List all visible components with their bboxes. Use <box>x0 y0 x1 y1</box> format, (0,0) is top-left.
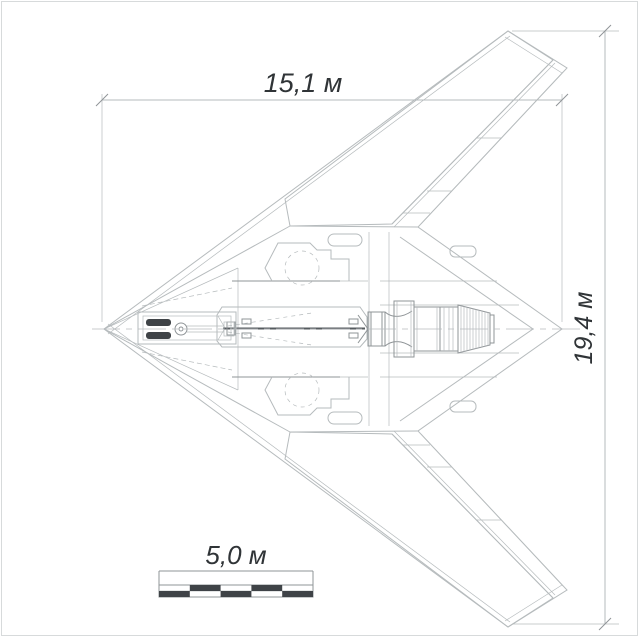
nose-wheel-left <box>146 319 171 326</box>
central-duct <box>217 307 367 347</box>
nose-wheel-right <box>146 332 171 339</box>
dimension-span-label: 19,4 м <box>570 292 598 365</box>
weapon-bay-top <box>265 234 476 285</box>
weapon-bay-bottom <box>265 373 476 424</box>
scale-bar-segments <box>159 585 313 597</box>
scale-bar-label: 5,0 м <box>205 540 266 570</box>
dimension-length-label: 15,1 м <box>264 68 343 98</box>
drawing-sheet: 15,1 м 19,4 м 5,0 м <box>0 0 640 638</box>
dimension-length: 15,1 м <box>96 68 568 322</box>
dimension-span: 19,4 м <box>512 25 619 630</box>
scale-bar: 5,0 м <box>159 540 313 597</box>
nose-gear <box>138 312 236 344</box>
aircraft-plan-drawing: 15,1 м 19,4 м 5,0 м <box>0 0 640 638</box>
